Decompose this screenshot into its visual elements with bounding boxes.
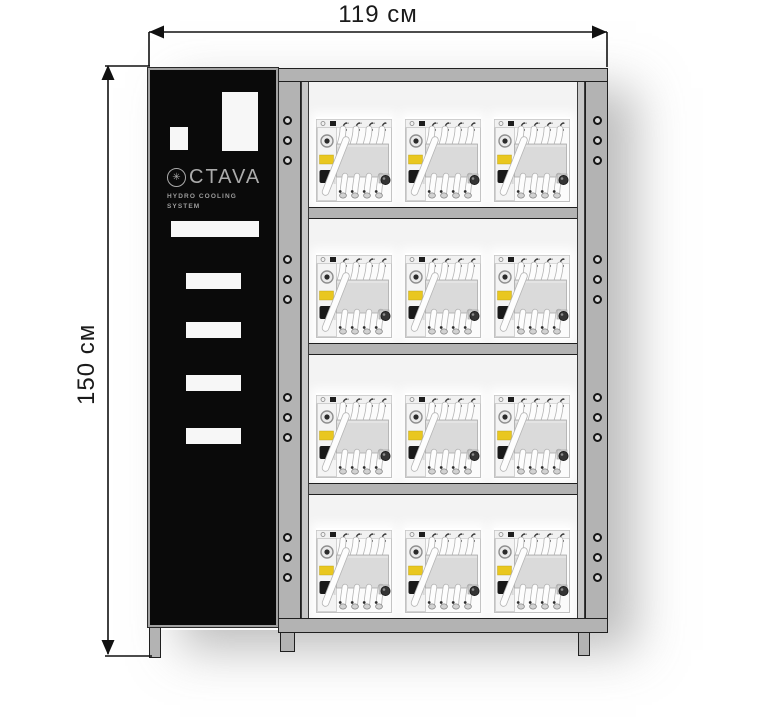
screw-hole <box>283 433 292 442</box>
shelf-section-3 <box>309 355 577 483</box>
miner-unit-graphic <box>405 528 481 614</box>
screw-hole <box>283 393 292 402</box>
screw-hole <box>593 573 602 582</box>
screw-hole <box>283 413 292 422</box>
panel-slot <box>186 375 241 391</box>
screw-hole <box>593 553 602 562</box>
miner-unit <box>316 393 392 479</box>
miner-unit <box>494 393 570 479</box>
screw-hole-group <box>283 393 292 442</box>
inner-post-left <box>301 82 309 618</box>
brand-subtitle-line2: SYSTEM <box>167 202 267 212</box>
screw-hole-group <box>593 116 602 165</box>
screw-hole <box>283 136 292 145</box>
brand-subtitle-line1: HYDRO COOLING <box>167 192 267 202</box>
screw-hole <box>283 156 292 165</box>
miner-unit-graphic <box>405 253 481 339</box>
panel-slot <box>186 273 241 289</box>
screw-hole-group <box>283 116 292 165</box>
width-dimension-label: 119 см <box>288 1 468 29</box>
shelf-divider <box>301 343 585 355</box>
screw-hole-group <box>283 533 292 582</box>
brand-logo-block: ✳ CTAVA HYDRO COOLING SYSTEM <box>167 166 267 212</box>
screw-hole <box>593 275 602 284</box>
hydro-cooling-rack-diagram: 119 см 150 см <box>0 0 757 723</box>
miner-unit-graphic <box>316 393 392 479</box>
screw-hole-group <box>593 255 602 304</box>
screw-hole <box>283 573 292 582</box>
screw-hole <box>283 255 292 264</box>
shelf-divider <box>301 207 585 219</box>
miner-unit-graphic <box>494 117 570 203</box>
miner-unit-graphic <box>494 253 570 339</box>
miner-unit <box>494 117 570 203</box>
shelf-section-4 <box>309 495 577 618</box>
brand-name: CTAVA <box>189 166 261 189</box>
panel-slot <box>186 322 241 338</box>
screw-hole <box>283 116 292 125</box>
shelf-divider <box>301 483 585 495</box>
shelf-frame <box>278 68 608 633</box>
screw-hole <box>593 156 602 165</box>
rack-leg-left <box>149 627 161 658</box>
miner-unit-graphic <box>405 117 481 203</box>
rack-leg-middle <box>280 631 295 652</box>
screw-hole <box>283 275 292 284</box>
rack-leg-right <box>578 632 590 656</box>
screw-hole <box>593 393 602 402</box>
screw-hole <box>593 533 602 542</box>
miner-unit-graphic <box>405 393 481 479</box>
miner-unit <box>405 393 481 479</box>
screw-hole <box>283 553 292 562</box>
screw-hole <box>593 413 602 422</box>
screw-hole <box>593 433 602 442</box>
inner-post-right <box>577 82 585 618</box>
rack-bottom-bar <box>278 618 608 633</box>
screw-hole-group <box>283 255 292 304</box>
miner-unit-graphic <box>316 117 392 203</box>
miner-unit <box>405 528 481 614</box>
snowflake-gear-icon: ✳ <box>167 168 186 187</box>
miner-unit-graphic <box>316 253 392 339</box>
screw-hole-group <box>593 393 602 442</box>
miner-unit <box>405 117 481 203</box>
miner-unit <box>316 253 392 339</box>
shelf-section-2 <box>309 219 577 343</box>
screw-hole <box>593 255 602 264</box>
screw-hole <box>593 136 602 145</box>
miner-unit <box>316 528 392 614</box>
screw-hole <box>283 295 292 304</box>
height-dimension-label: 150 см <box>50 331 124 405</box>
miner-unit <box>405 253 481 339</box>
panel-cutout-small <box>170 127 188 150</box>
shelf-section-1 <box>309 82 577 207</box>
miner-unit-graphic <box>494 528 570 614</box>
miner-unit <box>494 528 570 614</box>
panel-slot <box>186 428 241 444</box>
screw-hole <box>283 533 292 542</box>
screw-hole <box>593 295 602 304</box>
screw-hole <box>593 116 602 125</box>
rack-top-bar <box>278 68 608 82</box>
miner-unit-graphic <box>316 528 392 614</box>
brand-panel: ✳ CTAVA HYDRO COOLING SYSTEM <box>148 68 278 627</box>
miner-unit <box>316 117 392 203</box>
panel-slot-wide <box>171 221 259 237</box>
miner-unit <box>494 253 570 339</box>
miner-unit-graphic <box>494 393 570 479</box>
panel-cutout-large <box>222 92 258 151</box>
screw-hole-group <box>593 533 602 582</box>
